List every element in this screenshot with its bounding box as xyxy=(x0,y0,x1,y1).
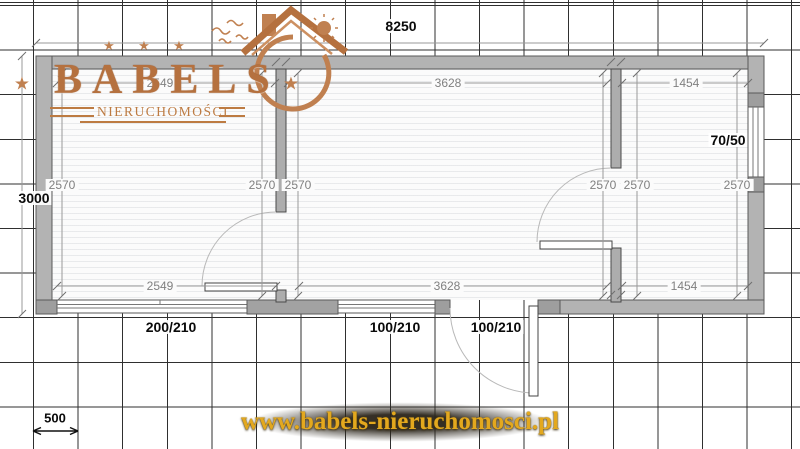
window-right xyxy=(748,107,764,177)
overall-width-dimension: 8250 xyxy=(383,19,418,33)
dim-room-right-height-r: 2570 xyxy=(721,179,754,191)
dim-room-middle-bottom: 3628 xyxy=(431,280,464,292)
dim-room-left-height-r: 2570 xyxy=(246,179,279,191)
label-window-middle: 100/210 xyxy=(368,320,423,334)
website-url: www.babels-nieruchomosci.pl xyxy=(241,408,559,436)
dim-room-left-height-l: 2570 xyxy=(46,179,79,191)
door-entrance-jamb-right xyxy=(538,300,560,314)
label-door-entrance: 100/210 xyxy=(469,320,524,334)
window-middle xyxy=(338,300,435,313)
dim-room-middle-height-l: 2570 xyxy=(282,179,315,191)
door-2-leaf xyxy=(540,241,612,249)
star-icon: ★ xyxy=(283,74,299,95)
dim-room-right-height-l: 2570 xyxy=(621,179,654,191)
birds-icon xyxy=(212,21,248,44)
logo-dash-left xyxy=(50,107,94,117)
window-left xyxy=(57,300,247,313)
overall-height-dimension: 3000 xyxy=(16,191,51,205)
logo-dash-right xyxy=(219,107,245,117)
logo-underline xyxy=(80,121,226,123)
doors xyxy=(202,168,612,396)
dim-room-right-top: 1454 xyxy=(670,77,703,89)
wall-right-lower xyxy=(748,192,764,314)
floor-plan-page: 8250 3000 2549 3628 1454 2549 3628 1454 … xyxy=(0,0,800,449)
dim-room-middle-height-r: 2570 xyxy=(587,179,620,191)
partition-2-upper xyxy=(611,69,621,168)
dim-room-left-bottom: 2549 xyxy=(144,280,177,292)
door-entrance-leaf xyxy=(529,306,538,396)
partition-1-stub xyxy=(276,290,286,302)
scale-bar-arrow xyxy=(33,428,78,435)
logo-wordmark: BABELS xyxy=(54,56,280,104)
star-icon: ★ xyxy=(173,38,185,54)
door-1-leaf xyxy=(205,283,277,291)
partition-walls xyxy=(276,69,621,302)
logo-roof-icon xyxy=(243,10,346,53)
wall-bottom-mid xyxy=(247,300,338,314)
window-right-jamb-top xyxy=(748,93,764,107)
wall-right-upper xyxy=(748,56,764,93)
logo-subtitle: NIERUCHOMOŚCI xyxy=(97,104,229,120)
label-window-right: 70/50 xyxy=(708,133,747,147)
dim-room-right-bottom: 1454 xyxy=(668,280,701,292)
door-1-swing-arc xyxy=(202,212,276,286)
website-banner: www.babels-nieruchomosci.pl xyxy=(205,399,595,445)
dim-room-middle-top: 3628 xyxy=(432,77,465,89)
wall-bottom-right xyxy=(560,300,764,314)
wall-bottom-corner xyxy=(36,300,57,314)
door-entrance-jamb-left xyxy=(435,300,450,314)
scale-bar-value: 500 xyxy=(42,412,68,425)
star-icon: ★ xyxy=(14,74,30,95)
label-window-left: 200/210 xyxy=(144,320,199,334)
star-icon: ★ xyxy=(103,38,115,54)
star-icon: ★ xyxy=(138,38,150,54)
